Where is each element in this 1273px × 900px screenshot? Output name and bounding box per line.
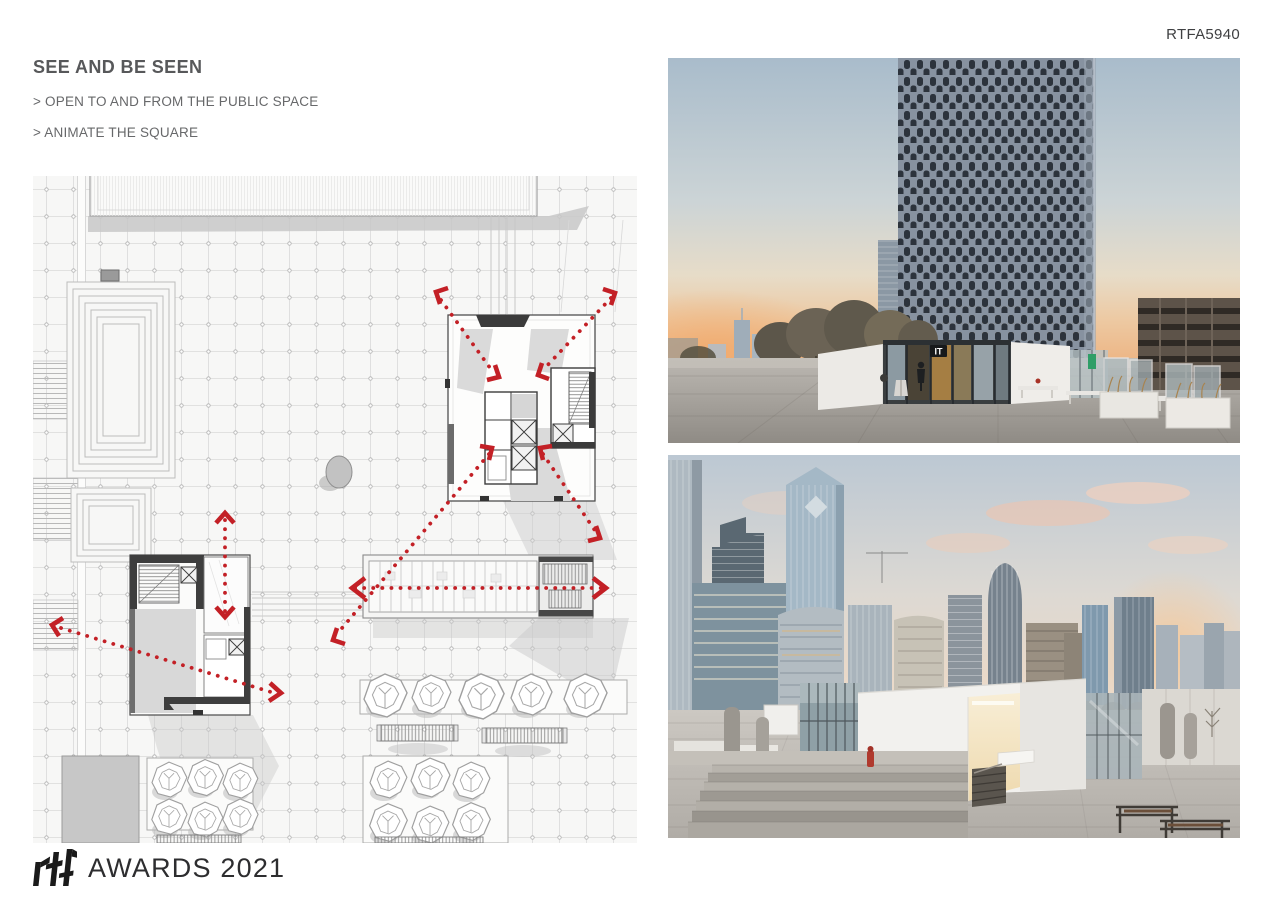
photo-plaza-sunset: IT	[668, 58, 1240, 443]
white-wall-far-right	[1142, 689, 1240, 765]
entry-code: RTFA5940	[1166, 26, 1240, 43]
photo-skyline-pavilion-graphic	[668, 455, 1240, 838]
presentation-board: RTFA5940 SEE AND BE SEEN > OPEN TO AND F…	[0, 0, 1273, 900]
it-sign: IT	[930, 345, 947, 357]
it-pavilion: IT	[818, 340, 1108, 410]
plan-planter-lower-right	[363, 756, 508, 843]
bullet-animate-square: > ANIMATE THE SQUARE	[33, 125, 198, 140]
photo-plaza-sunset-graphic: IT	[668, 58, 1240, 443]
awards-label: AWARDS 2021	[88, 853, 285, 884]
page-title: SEE AND BE SEEN	[33, 57, 202, 78]
site-plan-drawing	[33, 176, 637, 843]
amphitheater-steps	[668, 751, 968, 838]
glass-annex-left	[800, 683, 860, 759]
site-plan-figure	[33, 176, 637, 843]
bullet-open-to-public: > OPEN TO AND FROM THE PUBLIC SPACE	[33, 94, 318, 109]
glass-wall-right	[1086, 693, 1142, 779]
plan-planter-row-right	[360, 674, 627, 719]
footer: rtf AWARDS 2021	[31, 848, 285, 888]
svg-text:IT: IT	[935, 347, 944, 357]
photo-skyline-pavilion	[668, 455, 1240, 838]
rtf-logo	[31, 848, 77, 888]
fire-hydrant	[867, 746, 874, 767]
main-tower	[898, 58, 1096, 360]
